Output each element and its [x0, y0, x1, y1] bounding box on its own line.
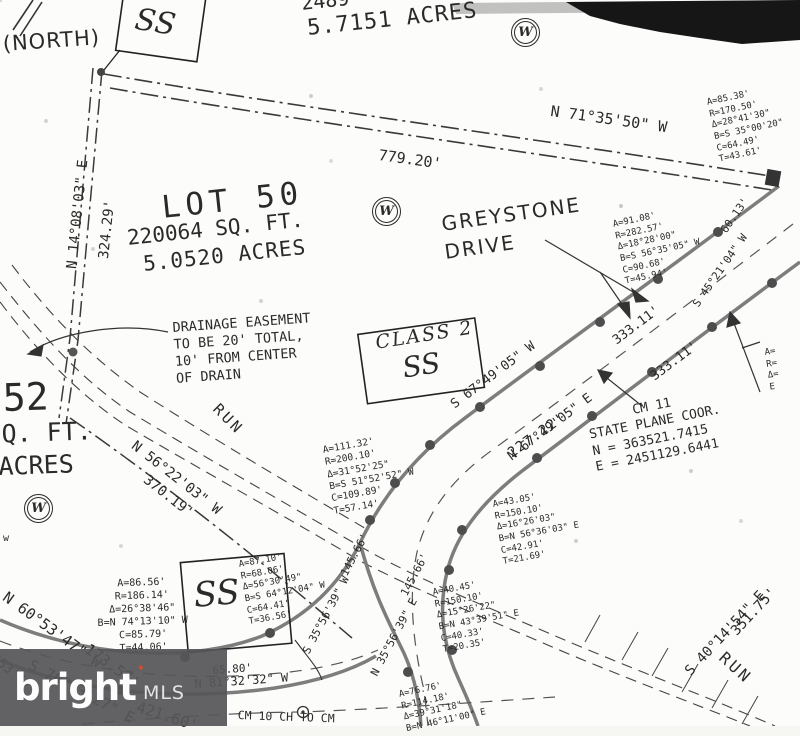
ss-box-tie-line: [104, 50, 120, 70]
bright-mls-watermark: bright ✦ MLS: [0, 649, 227, 726]
cm11-leader-arrow: [598, 370, 642, 406]
brand-star-icon: ✦: [137, 661, 145, 674]
brand-suffix: MLS: [143, 682, 185, 704]
north-boundary-line: [104, 74, 772, 190]
lot52-acres: ACRES: [0, 449, 74, 481]
well-letter: W: [379, 205, 394, 218]
well-symbol-icon: W: [511, 18, 540, 47]
ss-bottom-label: SS: [192, 572, 241, 616]
class2-ss-label: SS: [400, 346, 443, 385]
scan-black-blob: [566, 0, 800, 44]
boundary-pin: [97, 68, 105, 76]
curve-table-1: A=85.38' R=170.50' Δ=28°41'30" B=S 35°00…: [706, 83, 789, 166]
well-letter: W: [31, 502, 46, 515]
boundary-pin: [69, 348, 78, 357]
well-symbol-icon: W: [372, 197, 401, 226]
drainage-easement-note: DRAINAGE EASEMENT TO BE 20' TOTAL, 10' F…: [172, 310, 315, 387]
right-edge-arrow: [727, 312, 760, 392]
lot52-number: 52: [2, 374, 49, 420]
ss-top-label: SS: [133, 2, 179, 43]
stray-w-mark: w: [3, 533, 9, 544]
drainage-leader-arrow: [28, 328, 168, 356]
survey-plat-map: (NORTH) SS 2489 5.7151 ACRES N 71°35'50"…: [0, 0, 800, 726]
curve-table-4: A=43.05' R=150.10' Δ=16°26'03" B=N 56°36…: [492, 486, 584, 569]
brand-name: bright: [14, 669, 136, 706]
well-letter: W: [518, 26, 533, 39]
corner-monument-square: [765, 169, 782, 187]
lot52-sqft: SQ. FT.: [0, 416, 92, 449]
curve-table-3: A=111.32' R=200.10' Δ=31°52'25" B=S 51°5…: [322, 430, 419, 518]
curve-table-7: A=40.45' R=150.10' Δ=15°26'22" B=N 43°39…: [432, 574, 524, 657]
curve-table-5: A=86.56' R=186.14' Δ=26°38'46" B=N 74°13…: [96, 575, 189, 656]
well-symbol-icon: W: [24, 494, 53, 523]
